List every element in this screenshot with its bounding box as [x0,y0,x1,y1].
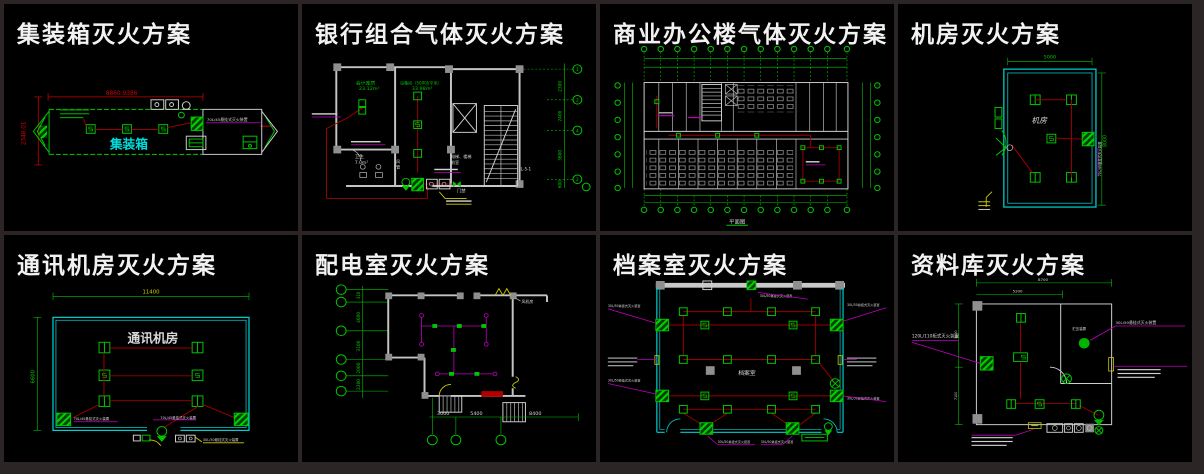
dim-left-b: 7100 [954,392,958,400]
axis-bubble-2: 2 [576,98,579,104]
alarm-bell [178,112,184,118]
dim-left-4: 2000 [356,362,362,373]
dim-left-1: 310 [356,291,361,299]
svg-text:30L/50悬挂式灭火装置: 30L/50悬挂式灭火装置 [847,302,880,307]
dim-left-3: 3100 [356,340,362,351]
gas-cylinder-device [1082,132,1094,145]
piping [669,298,834,424]
svg-text:30L/50悬挂式灭火装置: 30L/50悬挂式灭火装置 [608,378,641,383]
svg-text:120L/110柜式灭火装置: 120L/110柜式灭火装置 [912,333,960,340]
svg-text:30L/50悬挂式灭火装置: 30L/50悬挂式灭火装置 [760,293,793,298]
cabinet-label: 120L/110柜式灭火装置 [912,333,981,364]
drawing-gallery: 集装箱灭火方案 8860.9386 2348.01 [0,0,1196,466]
bottom-note [972,429,1034,445]
dim-top-label: 5000 [1044,55,1056,61]
dim-bottom-1: 3000 [437,411,449,417]
room2-area: 33.98m² [412,86,433,92]
door-device-label: 30L/50悬挂式灭火装置 [195,437,244,443]
staircase [484,106,517,186]
toilet-label: 卫生 [355,153,364,160]
control-devices [151,100,190,110]
stairs [439,396,525,422]
bottom-devices [1028,410,1103,434]
corner-note [978,192,992,210]
panel-title: 通讯机房灭火方案 [17,246,217,280]
column [706,366,715,375]
dim-left-5: 2200 [356,379,362,390]
axis-dim-2: 2400 [558,110,564,121]
caption-label: 平面图 [729,217,745,225]
room1-label: 会计库房 [356,80,376,87]
dim-bottom-3: 8400 [529,411,541,417]
panel-title: 机房灭火方案 [911,15,1061,49]
dim-left-label: 2348.01 [22,121,28,145]
walls [385,292,547,398]
fan-room-label: 风机房 [516,298,534,304]
nozzles [679,308,819,413]
dim-top-label: 11400 [142,289,160,295]
axis-grid [615,46,880,212]
right-note [1109,358,1187,378]
nozzles [1007,314,1081,409]
piping [83,119,191,130]
dim-mid-label: 5200 [1013,289,1023,294]
panel-title: 银行组合气体灭火方案 [315,15,565,49]
protected-room-piping [801,146,841,183]
room1-area: 23.12m² [359,86,380,92]
device-labels: 70L/45悬挂式灭火装置 70L/45悬挂式灭火装置 [74,415,197,422]
dim-right-label: 8000 [1103,135,1109,147]
duct-label-1: 风 [396,159,400,164]
tank-label: 贮压装置 [1072,326,1086,331]
room-label: 档案室 [738,369,756,377]
svg-text:30L/50悬挂式灭火装置: 30L/50悬挂式灭火装置 [1116,320,1157,325]
toilet-area: 7.0m² [355,160,368,166]
doors [667,379,840,441]
doors [439,289,518,396]
panel-office-plan[interactable]: 商业办公楼气体灭火方案 [600,4,894,231]
svg-text:30L/50悬挂式灭火装置: 30L/50悬挂式灭火装置 [608,303,641,308]
dim-bottom-2: 5400 [470,411,482,417]
panel-bank-plan[interactable]: 银行组合气体灭火方案 [302,4,596,231]
nozzles [99,342,203,406]
device-label: 70L/45悬挂式灭火装置 [1097,141,1102,176]
dim-left-2: 4600 [356,312,362,323]
note-text-block [60,109,89,118]
lobby-label-2: 前室 [451,159,459,165]
panel-machine-room-plan[interactable]: 机房灭火方案 5000 8000 机房 [898,4,1192,231]
duct-label-2: 管 [396,164,400,170]
dimensions [1008,58,1106,206]
door-gap [147,425,180,434]
gas-cylinder-device [191,117,203,130]
top-wall [656,281,845,290]
piping [420,314,497,376]
svg-text:风机房: 风机房 [522,299,534,304]
panel-container-plan[interactable]: 集装箱灭火方案 8860.9386 2348.01 [4,4,298,231]
dim-left-label: 6600 [30,369,36,383]
room-label: 集装箱 [109,137,149,152]
hanging-device-label: 30L/50悬挂式灭火装置 [1090,320,1185,340]
room-label: 通讯机房 [128,330,179,345]
axis-dim-4: 600 [558,180,564,188]
corner-device-right [234,413,248,425]
axis-left: 310 4600 3100 2000 2200 [336,285,388,398]
panel-power-room-plan[interactable]: 配电室灭火方案 310 4600 3100 2000 2200 [302,235,596,462]
cabinet-device [481,391,503,397]
panel-title: 集装箱灭火方案 [17,15,192,49]
piping [73,348,236,427]
desk-grid-bottom [646,148,793,186]
axis-bubble-4: 2 [576,177,579,183]
room2-label: 设备间（5000J/平米） [400,80,442,86]
dimensions [955,279,1112,425]
panel-archive-plan[interactable]: 档案室灭火方案 [600,235,894,462]
piping [327,96,453,198]
elevator-shaft [453,104,477,133]
storage-tank [1079,338,1090,349]
axis-bubble-3: 4 [576,128,579,134]
axis-bubble-1: 1 [576,67,579,73]
lobby-label-1: 电梯、楼梯 [451,153,471,159]
access-label: 门禁 [457,188,466,195]
fan-unit [189,136,257,148]
axis-dim-1: 2300 [558,81,564,92]
stair-mark: JL-5-1 [519,167,532,172]
device-leader: 70L/45悬挂式灭火装置 [1097,141,1102,176]
device-left-label: 70L/45悬挂式灭火装置 [74,416,110,421]
device-leader: 70L/45悬挂式灭火装置 [206,117,261,123]
axis-dim-3: 3600 [558,150,564,161]
panel-library-plan[interactable]: 资料库灭火方案 8700 5200 3000 7100 120L/110柜式灭火… [898,235,1192,462]
leader-labels: 30L/50悬挂式灭火装置 30L/50悬挂式灭火装置 30L/50悬挂式灭火装… [608,292,886,444]
svg-text:30L/50悬挂式灭火装置: 30L/50悬挂式灭火装置 [718,439,751,444]
panel-title: 档案室灭火方案 [613,246,788,280]
panel-telecom-room-plan[interactable]: 通讯机房灭火方案 11400 6600 通讯机房 [4,235,298,462]
column [792,366,801,375]
panel-title: 商业办公楼气体灭火方案 [613,15,888,49]
nozzles [359,92,422,157]
room-label: 机房 [1031,116,1048,125]
device-label: 70L/45悬挂式灭火装置 [207,117,248,122]
desk-grid-top [735,85,794,112]
panel-title: 配电室灭火方案 [315,246,490,280]
corner-device-left [57,413,71,425]
panel-title: 资料库灭火方案 [911,246,1086,280]
door-device-label-text: 30L/50悬挂式灭火装置 [203,437,239,442]
dim-top-label: 8860.9386 [106,91,138,97]
axis-grid: 1 2 4 2 2300 2400 3600 600 [523,63,590,190]
cabinet-device [980,357,993,370]
device-right-label: 70L/45悬挂式灭火装置 [160,415,196,420]
